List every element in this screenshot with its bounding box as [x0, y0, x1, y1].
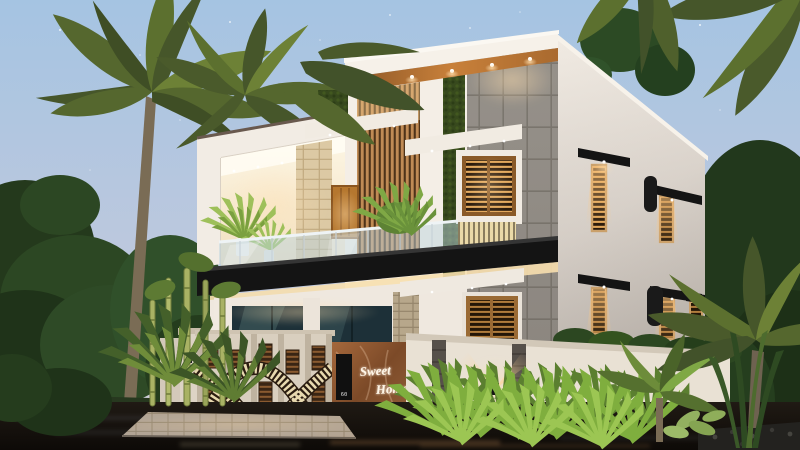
nameplate-text-line1: Sweet	[359, 362, 391, 379]
scene-architectural-render: 60 Sweet Home	[0, 0, 800, 450]
house-number: 60	[341, 392, 348, 398]
side-arch-fin-upper	[644, 176, 657, 212]
upper-louver-window	[456, 150, 522, 224]
